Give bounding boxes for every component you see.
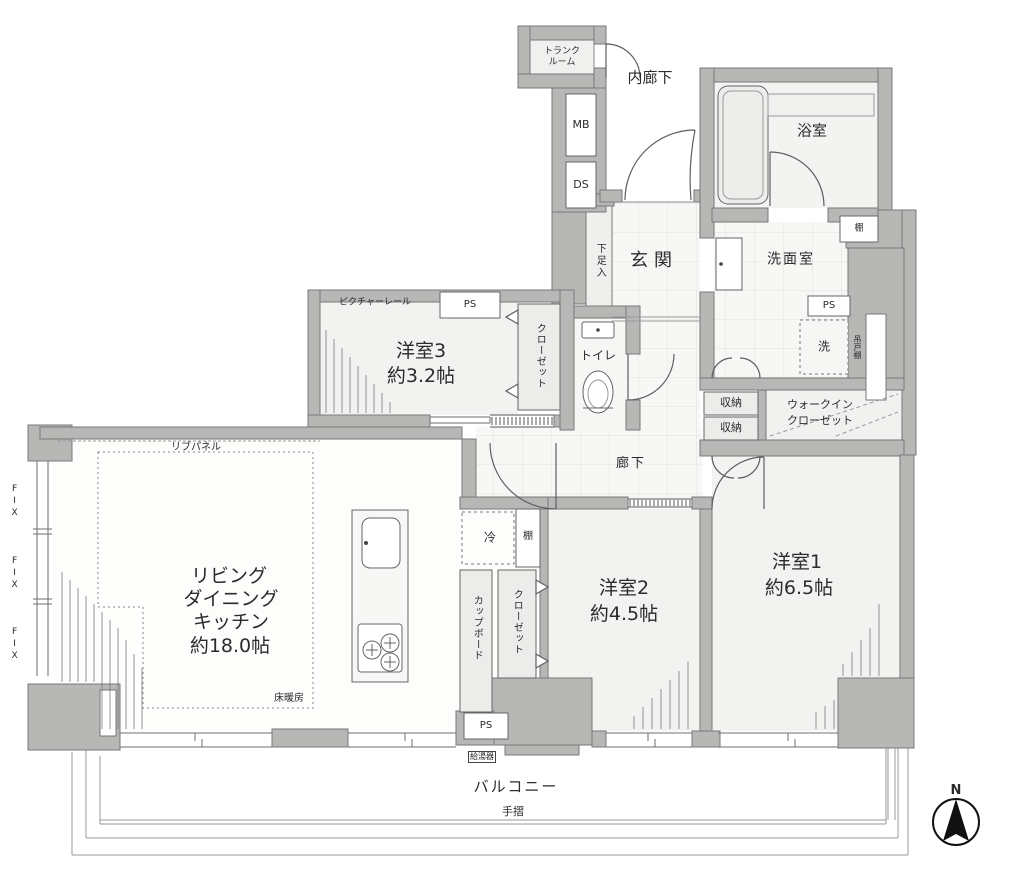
label-toilet: トイレ <box>580 349 616 364</box>
label-ps-room3: PS <box>464 299 476 312</box>
label-ps-bottom: PS <box>480 720 492 733</box>
label-shelf-bath: 棚 <box>854 223 863 234</box>
label-laundry: 洗 <box>818 340 830 355</box>
kitchen-island-icon <box>352 510 408 682</box>
label-ldk-line3: キッチン <box>193 611 269 635</box>
label-room3-name: 洋室3 <box>396 340 446 364</box>
label-cupboard: カップボード <box>470 595 483 661</box>
label-room1-name: 洋室1 <box>772 551 822 575</box>
label-rib-panel: リブパネル <box>171 442 221 455</box>
label-north: N <box>951 783 962 799</box>
label-wic-line2: クローゼット <box>787 414 853 428</box>
floorplan: トランク ルーム 内廊下 MB DS 浴室 棚 玄関 下足入 洗面室 PS 洗 … <box>0 0 1014 882</box>
label-washroom: 洗面室 <box>767 251 815 269</box>
label-storage-lower: 収納 <box>720 421 742 435</box>
label-floor-heating: 床暖房 <box>274 693 304 706</box>
floorplan-svg <box>0 0 1014 882</box>
label-storage-upper: 収納 <box>720 396 742 410</box>
label-closet-room3: クローゼット <box>533 323 546 389</box>
label-fix-2: FIX <box>8 556 19 592</box>
label-bathroom: 浴室 <box>797 122 827 141</box>
label-room2-size: 約4.5帖 <box>590 603 658 627</box>
label-closet-room2: クローゼット <box>510 589 523 655</box>
label-wic-line1: ウォークイン <box>787 398 853 412</box>
label-fix-3: FIX <box>8 627 19 663</box>
label-ps-washroom: PS <box>823 300 835 313</box>
north-arrow-icon <box>933 799 979 845</box>
label-trunk-room-line1: トランク <box>544 46 580 57</box>
label-ds: DS <box>573 178 588 192</box>
label-hanging-shelf: 吊戸棚 <box>852 335 862 359</box>
label-trunk-room-line2: ルーム <box>549 57 576 68</box>
sink-icon <box>362 518 400 568</box>
label-fix-1: FIX <box>8 484 19 520</box>
label-ldk-line4: 約18.0帖 <box>190 635 270 659</box>
label-ldk-line2: ダイニング <box>183 588 278 612</box>
label-ldk-line1: リビング <box>191 565 267 589</box>
label-hallway: 廊下 <box>616 456 646 472</box>
label-room2-name: 洋室2 <box>599 577 649 601</box>
label-shelf-room2: 棚 <box>523 531 533 544</box>
label-shoe-cabinet: 下足入 <box>593 243 606 279</box>
label-picture-rail: ピクチャーレール <box>339 297 411 308</box>
label-room3-size: 約3.2帖 <box>387 365 455 389</box>
entrance-door-arc <box>625 130 695 200</box>
label-water-heater: 給湯器 <box>468 751 496 763</box>
balcony-railing <box>72 748 908 855</box>
label-refrigerator: 冷 <box>484 531 496 546</box>
stove-icon <box>358 624 402 672</box>
label-inner-corridor: 内廊下 <box>627 69 672 88</box>
label-handrail: 手摺 <box>502 805 524 819</box>
label-balcony: バルコニー <box>474 778 559 797</box>
washroom-door-leaf <box>716 238 742 290</box>
label-entrance: 玄関 <box>630 250 678 273</box>
label-mb: MB <box>572 118 589 132</box>
label-room1-size: 約6.5帖 <box>765 577 833 601</box>
